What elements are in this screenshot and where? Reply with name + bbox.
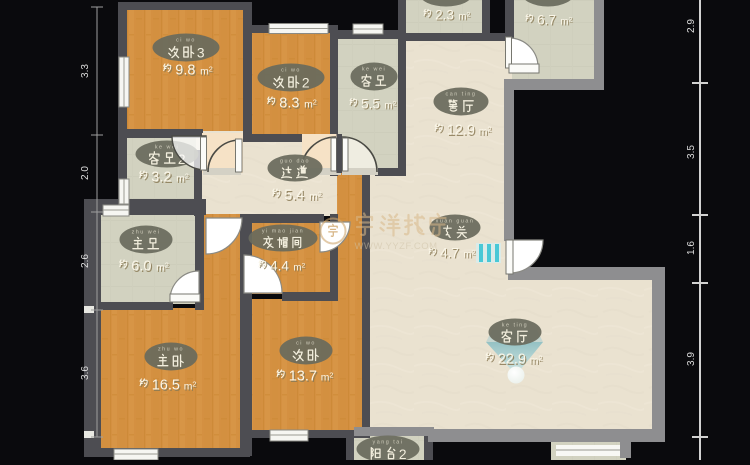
svg-text:3: 3 bbox=[197, 46, 205, 61]
svg-text:8.3: 8.3 bbox=[279, 96, 299, 112]
svg-text:4.4: 4.4 bbox=[270, 258, 289, 273]
svg-text:2: 2 bbox=[302, 76, 310, 91]
svg-text:ci wo: ci wo bbox=[296, 341, 316, 347]
svg-text:12.9: 12.9 bbox=[447, 123, 475, 139]
svg-text:2.0: 2.0 bbox=[80, 166, 91, 180]
svg-text:ke ting: ke ting bbox=[502, 323, 528, 329]
svg-text:WWW.YYZF.COM: WWW.YYZF.COM bbox=[354, 241, 437, 252]
svg-text:6.0: 6.0 bbox=[131, 259, 151, 275]
svg-text:3.5: 3.5 bbox=[686, 145, 697, 159]
svg-text:yi mao jian: yi mao jian bbox=[262, 229, 304, 235]
svg-text:2.6: 2.6 bbox=[80, 254, 91, 268]
svg-text:zhu wo: zhu wo bbox=[158, 347, 184, 353]
svg-text:1.6: 1.6 bbox=[686, 241, 697, 255]
svg-text:ci wo: ci wo bbox=[281, 68, 301, 74]
svg-text:5.5: 5.5 bbox=[361, 96, 380, 111]
svg-text:22.9: 22.9 bbox=[498, 352, 526, 368]
svg-text:ci wo: ci wo bbox=[176, 38, 196, 44]
svg-text:3.9: 3.9 bbox=[686, 352, 697, 366]
svg-text:yang tai: yang tai bbox=[373, 440, 404, 446]
svg-text:13.7: 13.7 bbox=[289, 369, 317, 385]
svg-text:16.5: 16.5 bbox=[152, 378, 180, 394]
svg-text:ke wei: ke wei bbox=[362, 67, 386, 73]
svg-text:3.6: 3.6 bbox=[80, 366, 91, 380]
svg-text:3.2: 3.2 bbox=[151, 170, 171, 186]
svg-text:3.3: 3.3 bbox=[80, 64, 91, 78]
svg-text:5.4: 5.4 bbox=[284, 188, 304, 204]
svg-text:2: 2 bbox=[399, 447, 407, 460]
svg-text:zhu wei: zhu wei bbox=[132, 230, 161, 236]
svg-text:guo dao: guo dao bbox=[280, 159, 310, 165]
svg-text:can ting: can ting bbox=[446, 92, 477, 98]
svg-text:2.3: 2.3 bbox=[435, 7, 454, 22]
svg-text:2.9: 2.9 bbox=[686, 19, 697, 33]
svg-text:4.7: 4.7 bbox=[440, 245, 459, 260]
svg-text:9.8: 9.8 bbox=[175, 63, 195, 79]
svg-text:6.7: 6.7 bbox=[537, 12, 556, 27]
